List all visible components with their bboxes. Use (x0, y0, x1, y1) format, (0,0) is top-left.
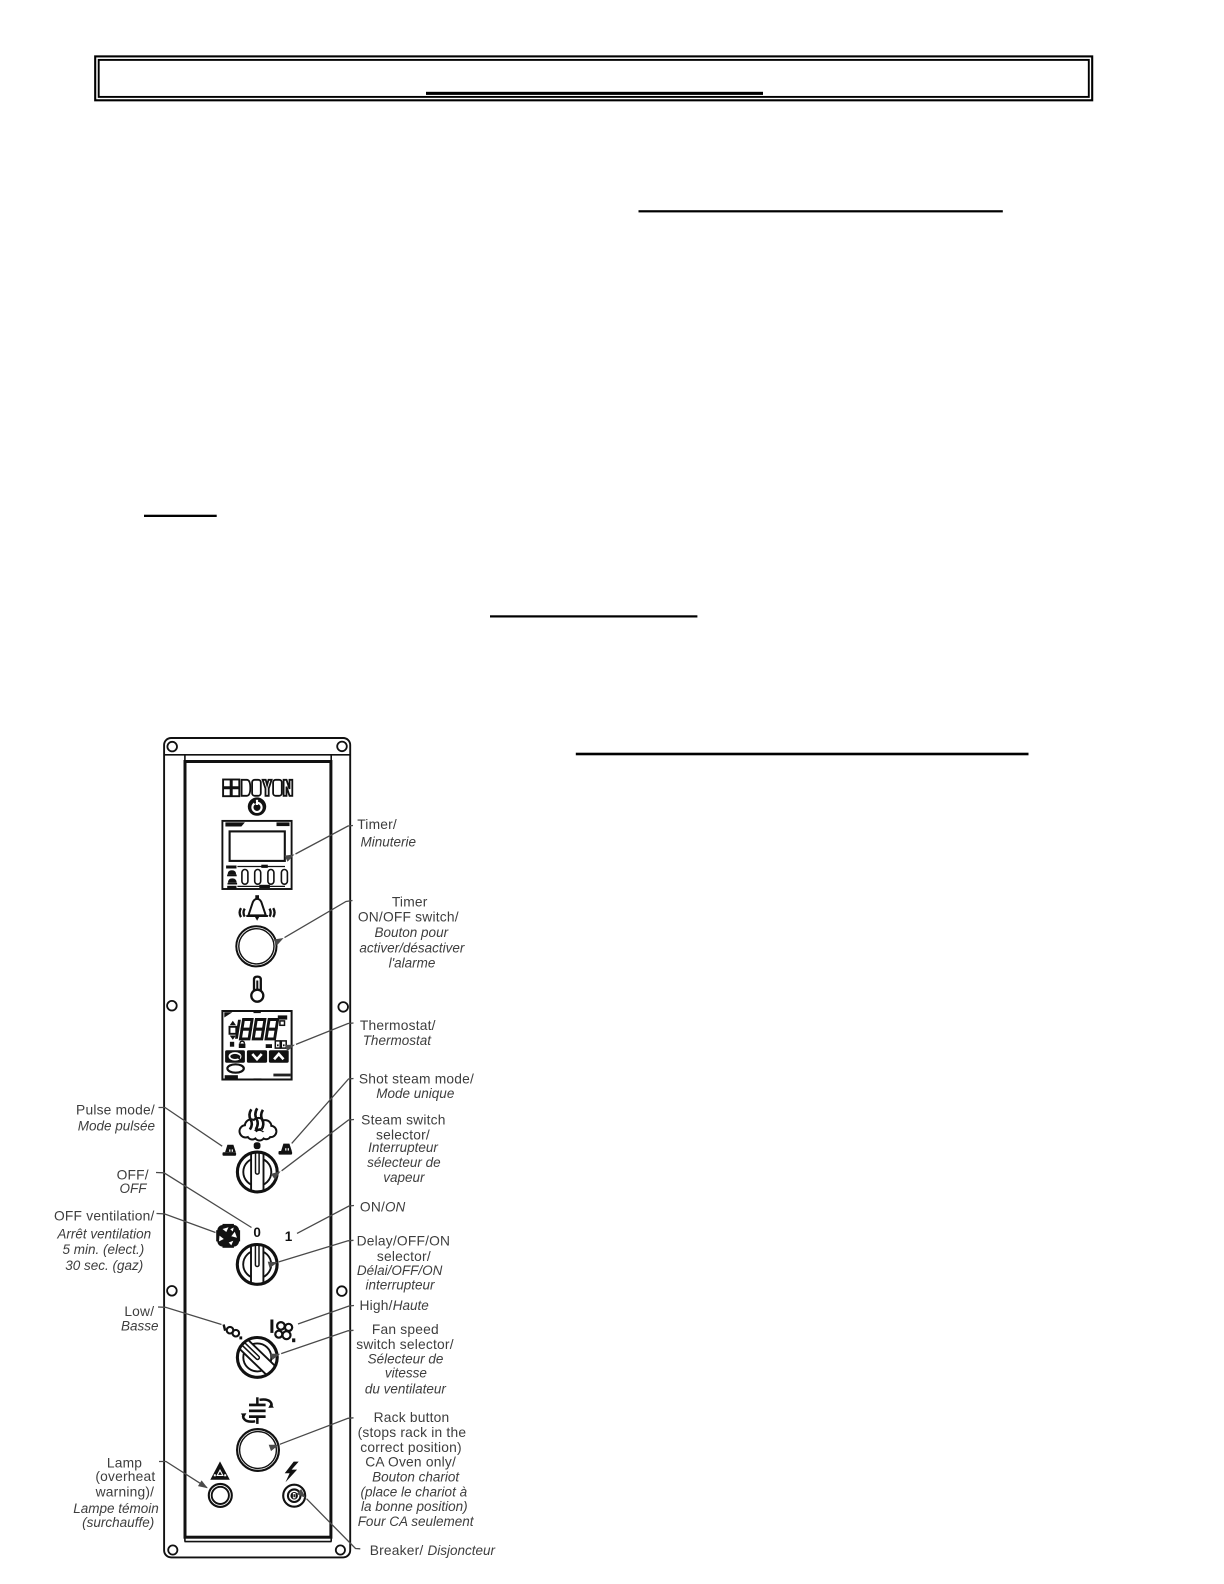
svg-text:1: 1 (285, 1229, 293, 1244)
svg-text:Bouton chariot: Bouton chariot (372, 1470, 460, 1485)
svg-text:Délai/OFF/ON: Délai/OFF/ON (357, 1263, 443, 1278)
svg-text:Four CA seulement: Four CA seulement (358, 1514, 475, 1529)
svg-text:ON/OFF switch/: ON/OFF switch/ (358, 910, 459, 925)
svg-text:Fan speed: Fan speed (372, 1322, 439, 1337)
svg-text:Mode pulsée: Mode pulsée (78, 1119, 155, 1134)
svg-text:5 min. (elect.): 5 min. (elect.) (63, 1242, 145, 1257)
svg-text:switch selector/: switch selector/ (356, 1337, 454, 1352)
svg-text:vitesse: vitesse (385, 1366, 427, 1381)
svg-text:Lampe témoin: Lampe témoin (73, 1501, 159, 1516)
svg-text:0: 0 (253, 1225, 261, 1240)
svg-text:Sélecteur de: Sélecteur de (368, 1352, 444, 1367)
svg-text:OFF ventilation/: OFF ventilation/ (54, 1209, 155, 1224)
svg-text:(place le chariot à: (place le chariot à (361, 1484, 468, 1499)
svg-text:l'alarme: l'alarme (389, 956, 436, 971)
svg-text:Pulse mode/: Pulse mode/ (76, 1103, 155, 1118)
svg-text:correct position): correct position) (360, 1440, 462, 1455)
svg-text:Steam switch: Steam switch (361, 1113, 445, 1128)
svg-text:Thermostat: Thermostat (363, 1033, 433, 1048)
svg-text:Timer: Timer (392, 895, 428, 910)
svg-text:selector/: selector/ (377, 1249, 431, 1264)
svg-text:Thermostat/: Thermostat/ (360, 1018, 436, 1033)
svg-text:High/Haute: High/Haute (360, 1298, 429, 1313)
svg-text:warning)/: warning)/ (95, 1484, 155, 1499)
svg-text:ON/ON: ON/ON (360, 1200, 406, 1215)
svg-text:sélecteur de: sélecteur de (367, 1155, 441, 1170)
svg-text:Interrupteur: Interrupteur (368, 1140, 438, 1155)
svg-text:30 sec. (gaz): 30 sec. (gaz) (65, 1258, 143, 1273)
svg-text:du ventilateur: du ventilateur (365, 1381, 447, 1396)
svg-text:la bonne position): la bonne position) (361, 1499, 468, 1514)
svg-text:Shot steam mode/: Shot steam mode/ (359, 1072, 474, 1087)
svg-text:(overheat: (overheat (95, 1469, 155, 1484)
svg-text:Low/: Low/ (124, 1304, 154, 1319)
svg-text:CA Oven only/: CA Oven only/ (365, 1455, 456, 1470)
svg-text:Minuterie: Minuterie (361, 835, 417, 850)
svg-text:Arrêt ventilation: Arrêt ventilation (56, 1226, 151, 1241)
svg-text:Basse: Basse (121, 1318, 159, 1333)
svg-text:activer/désactiver: activer/désactiver (359, 940, 465, 955)
svg-text:Breaker/ Disjoncteur: Breaker/ Disjoncteur (370, 1543, 496, 1558)
svg-text:(stops rack in the: (stops rack in the (358, 1425, 467, 1440)
svg-text:Bouton pour: Bouton pour (375, 925, 449, 940)
svg-text:Timer/: Timer/ (357, 817, 397, 832)
svg-text:(surchauffe): (surchauffe) (82, 1515, 154, 1530)
svg-text:vapeur: vapeur (383, 1170, 425, 1185)
svg-text:OFF: OFF (120, 1181, 148, 1196)
svg-text:Rack button: Rack button (374, 1410, 450, 1425)
svg-text:interrupteur: interrupteur (365, 1277, 435, 1292)
svg-text:Delay/OFF/ON: Delay/OFF/ON (357, 1234, 451, 1249)
svg-text:Mode unique: Mode unique (376, 1086, 454, 1101)
